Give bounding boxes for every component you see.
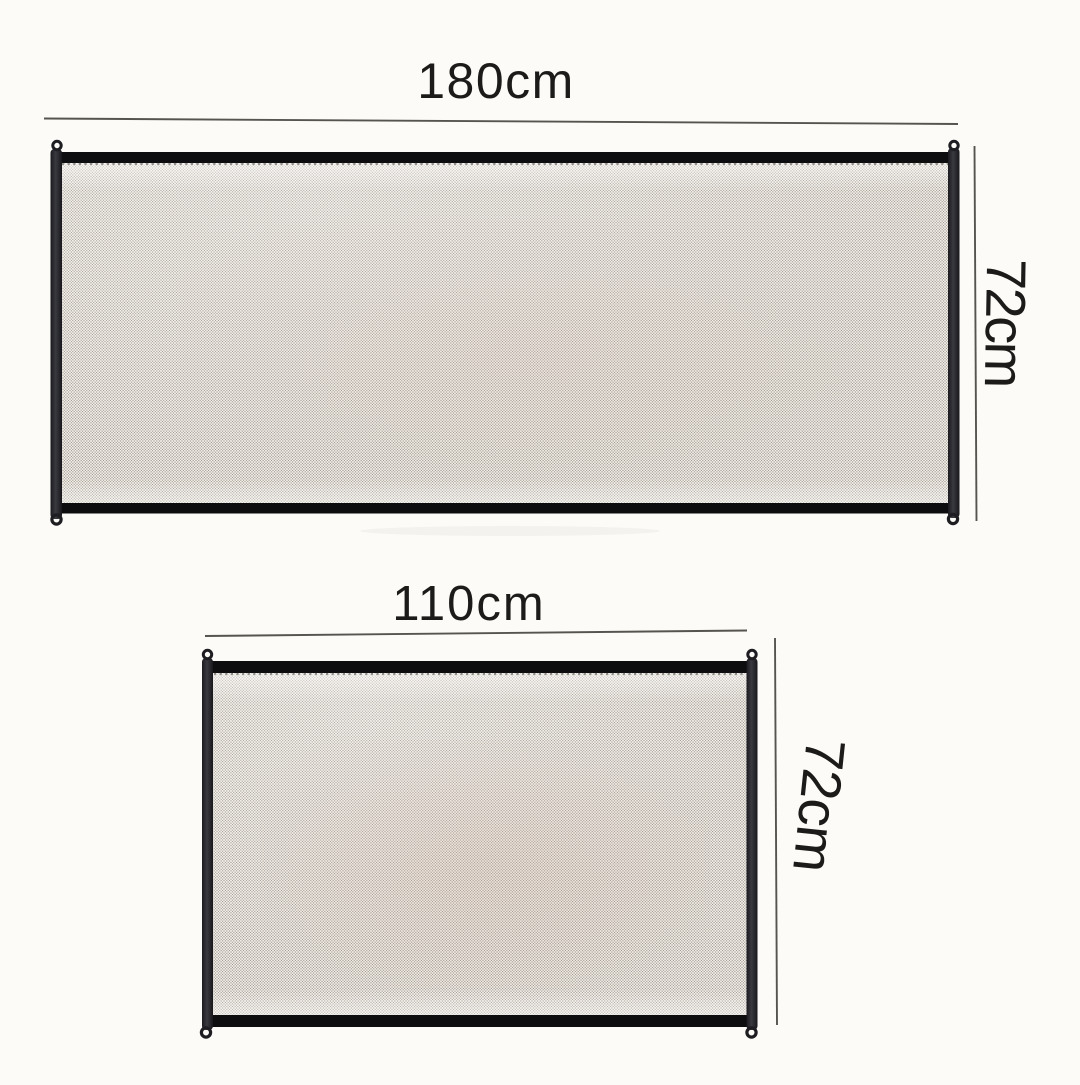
svg-text:110cm: 110cm bbox=[392, 577, 545, 631]
svg-text:180cm: 180cm bbox=[417, 53, 575, 109]
svg-text:72cm: 72cm bbox=[973, 258, 1038, 386]
